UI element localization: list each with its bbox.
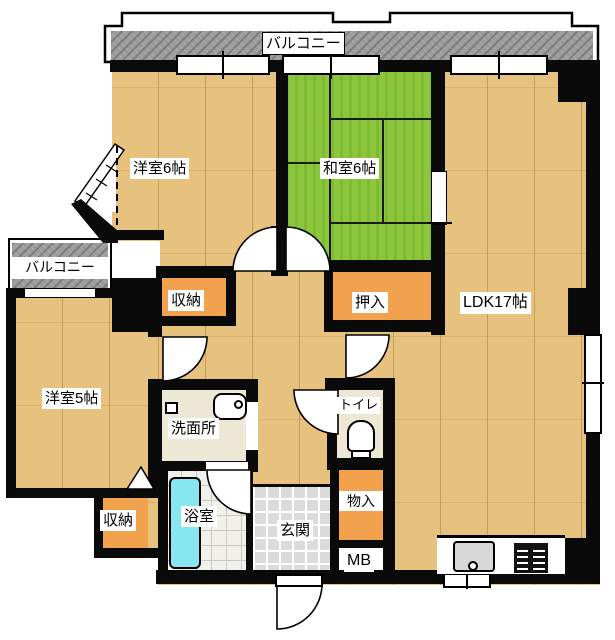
kitchen-faucet-icon xyxy=(468,561,478,571)
closet-upper-label: 収納 xyxy=(168,290,204,311)
floor-plan: バルコニー バルコニー 洋室6帖 和室6帖 LDK17帖 収納 押入 洋室5帖 … xyxy=(0,0,615,640)
bathroom-label: 浴室 xyxy=(181,506,217,527)
stove-divider xyxy=(528,545,533,571)
door-swing-arc xyxy=(294,390,338,434)
western-room-6-label: 洋室6帖 xyxy=(130,158,189,179)
entrance-door-swing-arc xyxy=(277,584,322,629)
toilet-icon xyxy=(347,420,375,452)
japanese-room-6-label: 和室6帖 xyxy=(320,158,379,179)
oshiire-label: 押入 xyxy=(352,292,388,313)
western-room-5-label: 洋室5帖 xyxy=(42,388,101,409)
washer-pan-icon xyxy=(165,402,178,414)
entrance-label: 玄関 xyxy=(277,520,313,541)
door-swing-arc xyxy=(163,337,207,381)
triangle-step-marker xyxy=(127,467,154,489)
meter-box-label: MB xyxy=(344,550,374,572)
ldk-label: LDK17帖 xyxy=(460,292,531,314)
washroom-label: 洗面所 xyxy=(168,418,219,439)
door-swing-arc xyxy=(346,335,389,378)
balcony-left-label: バルコニー xyxy=(12,257,108,277)
toilet-label: トイレ xyxy=(337,397,380,414)
closet-lower-label: 収納 xyxy=(100,510,136,531)
washbasin-faucet-icon xyxy=(234,400,243,409)
balcony-top-label: バルコニー xyxy=(262,32,345,55)
entrance-door-leaf xyxy=(275,574,323,587)
storage-small-label: 物入 xyxy=(339,491,383,511)
toilet-base-icon xyxy=(351,450,371,459)
door-swing-arc xyxy=(233,227,277,271)
door-swing-arc xyxy=(286,227,330,271)
